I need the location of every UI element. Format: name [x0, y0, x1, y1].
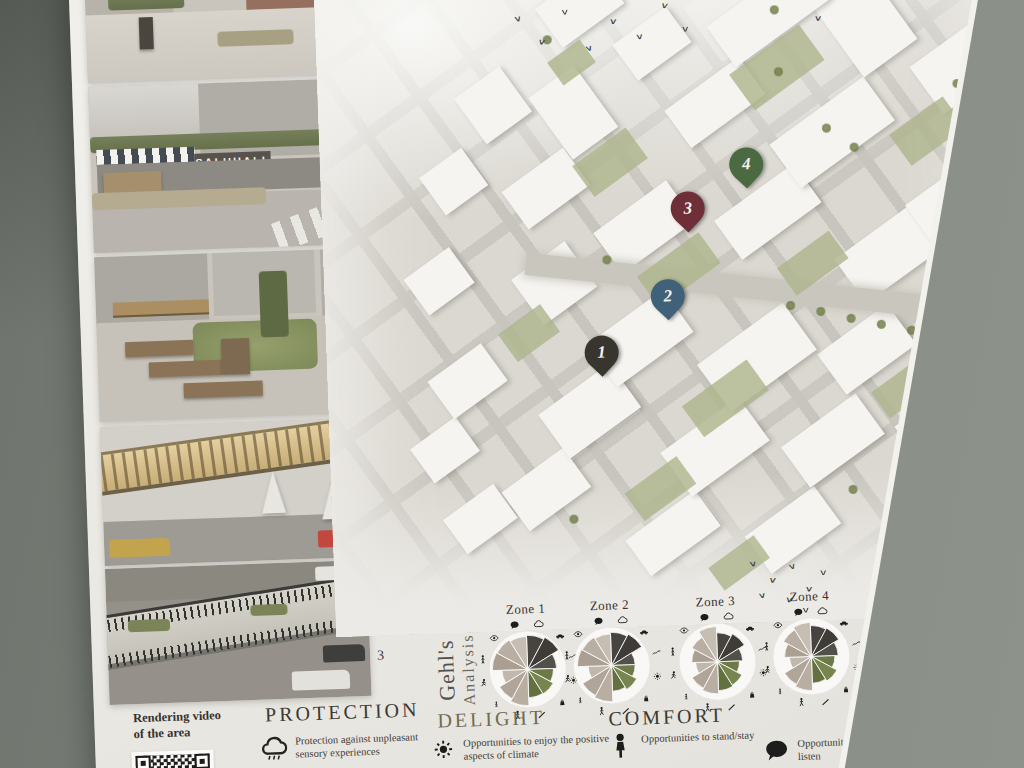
video-qr-code: [131, 749, 216, 768]
map-tree: [846, 314, 855, 323]
standing-person-icon: [565, 651, 568, 659]
map-tree: [816, 307, 825, 316]
eye-icon: [680, 628, 688, 633]
photo-scene: SALUHALL: [0, 0, 1024, 768]
sun-icon: [654, 673, 661, 680]
gehl-rose-chart-zone-3: Zone 3: [663, 592, 771, 720]
car-icon: [640, 630, 648, 634]
legend-item-delight: Opportunities to enjoy the positive aspe…: [431, 731, 632, 764]
yellow-car: [109, 537, 170, 557]
speech-bubble-icon: [511, 621, 519, 629]
cloud-icon: [618, 617, 627, 623]
map-building-block: [410, 417, 480, 484]
map-building-block: [454, 66, 532, 144]
legend-title-protection: PROTECTION: [265, 698, 420, 726]
bird-icon: ∨: [635, 32, 645, 42]
eye-icon: [490, 635, 498, 640]
ramp-icon: [729, 705, 735, 711]
bird-icon: ∨: [813, 14, 822, 23]
child-icon: [495, 701, 497, 707]
bird-icon: ∨: [768, 576, 778, 585]
child-icon: [779, 689, 781, 695]
map-tree: [850, 143, 859, 152]
wood-planter: [183, 380, 262, 398]
walking-person-icon: [800, 698, 803, 706]
map-building-block: [612, 6, 691, 80]
speech-bubble-icon: [700, 614, 708, 622]
bag-icon: [844, 687, 848, 692]
sun-icon: [431, 737, 456, 762]
ramp-icon: [822, 699, 828, 705]
cloud-icon: [818, 608, 827, 614]
bird-icon: ∨: [681, 24, 690, 33]
map-tree: [786, 301, 795, 310]
ramp-icon: [539, 712, 545, 718]
map-building-block: [419, 148, 488, 216]
white-car: [292, 669, 350, 690]
car-icon: [840, 621, 848, 625]
runner-icon: [765, 666, 769, 673]
gehl-rose-chart-zone-2: Zone 2: [557, 596, 665, 724]
cloud-icon: [724, 613, 733, 619]
sign-board: [138, 17, 154, 50]
winding-path-icon: [853, 642, 861, 645]
winding-path-icon: [653, 651, 661, 654]
ramp-icon: [623, 708, 629, 714]
bag-icon: [750, 692, 754, 697]
map-building-block: [801, 0, 918, 78]
runner-icon: [671, 671, 675, 678]
map-building-block: [502, 148, 591, 230]
gehl-rose-chart-zone-4: Zone 4: [757, 587, 865, 715]
map-tree: [848, 485, 857, 494]
speech-bubble-icon: [763, 737, 790, 764]
standing-person-icon: [481, 655, 484, 663]
bird-icon: ∨: [819, 568, 828, 577]
map-building-block: [511, 241, 597, 325]
speech-bubble-icon: [594, 618, 602, 626]
bird-icon: ∨: [537, 37, 547, 46]
wood-planter: [125, 340, 193, 357]
car-icon: [746, 627, 754, 631]
child-icon: [685, 694, 687, 700]
eye-icon: [574, 632, 582, 637]
playground-structure: [221, 338, 250, 375]
map-building-block: [404, 247, 475, 316]
runner-icon: [481, 679, 485, 686]
rain-cloud-icon: [261, 735, 288, 762]
map-building-block: [781, 393, 885, 488]
standing-person-icon: [607, 733, 634, 760]
eye-icon: [774, 623, 782, 628]
wood-planter: [149, 360, 223, 377]
bag-icon: [644, 696, 648, 701]
runner-icon: [565, 675, 569, 682]
standing-person-icon: [671, 647, 674, 655]
map-building-block: [769, 76, 895, 188]
bridge-pier: [261, 471, 286, 514]
map-tree: [569, 515, 578, 524]
planting: [128, 619, 170, 633]
walking-person-icon: [600, 707, 603, 715]
map-building-block: [427, 343, 507, 419]
legend-item-protection: Protection against unpleasant sensory ex…: [261, 729, 452, 762]
trees: [108, 0, 184, 11]
tree: [258, 270, 288, 337]
child-icon: [579, 698, 581, 704]
bird-icon: ∨: [560, 8, 569, 17]
bird-icon: ∨: [748, 559, 759, 569]
standing-person-icon: [765, 642, 768, 650]
bird-icon: ∨: [608, 17, 618, 26]
dark-car: [323, 644, 365, 662]
speech-bubble-icon: [794, 609, 802, 617]
flower-bed: [218, 29, 294, 47]
walking-person-icon: [706, 703, 709, 711]
planting: [250, 604, 287, 616]
render-image-elevated-walkway: [105, 560, 372, 705]
rendering-video-label: Rendering video of the area: [133, 707, 222, 743]
cloud-icon: [534, 620, 543, 626]
walking-person-icon: [516, 711, 519, 719]
